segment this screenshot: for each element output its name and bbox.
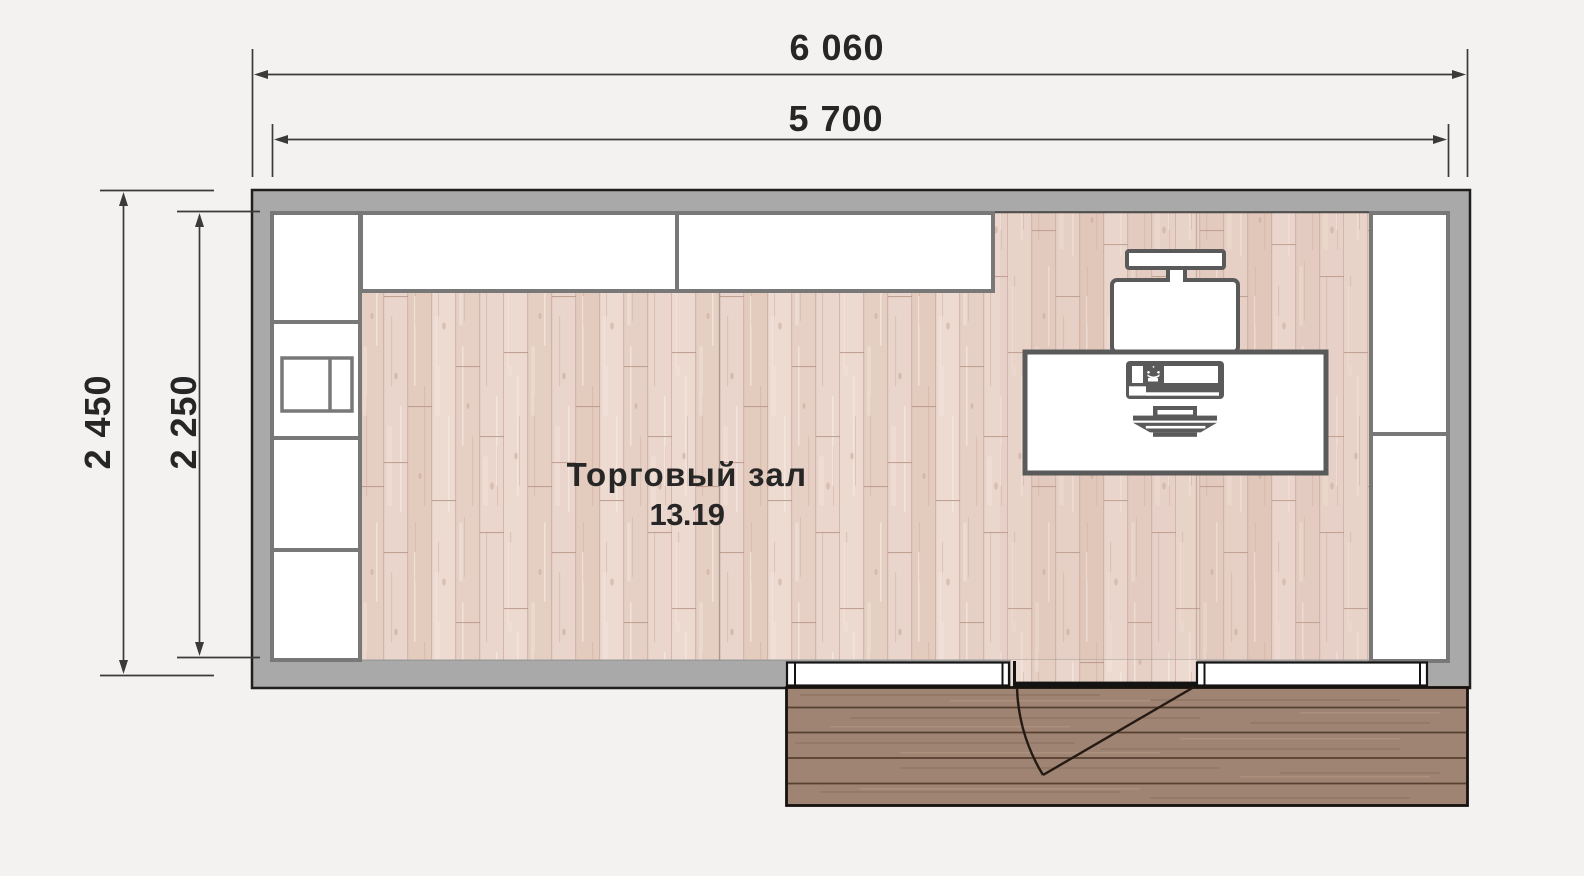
svg-text:5 700: 5 700 xyxy=(788,98,883,139)
svg-text:Торговый зал: Торговый зал xyxy=(567,456,808,493)
svg-text:6 060: 6 060 xyxy=(789,27,884,68)
svg-text:2 250: 2 250 xyxy=(163,374,204,469)
svg-text:2 450: 2 450 xyxy=(77,374,118,469)
svg-text:13.19: 13.19 xyxy=(649,497,724,532)
